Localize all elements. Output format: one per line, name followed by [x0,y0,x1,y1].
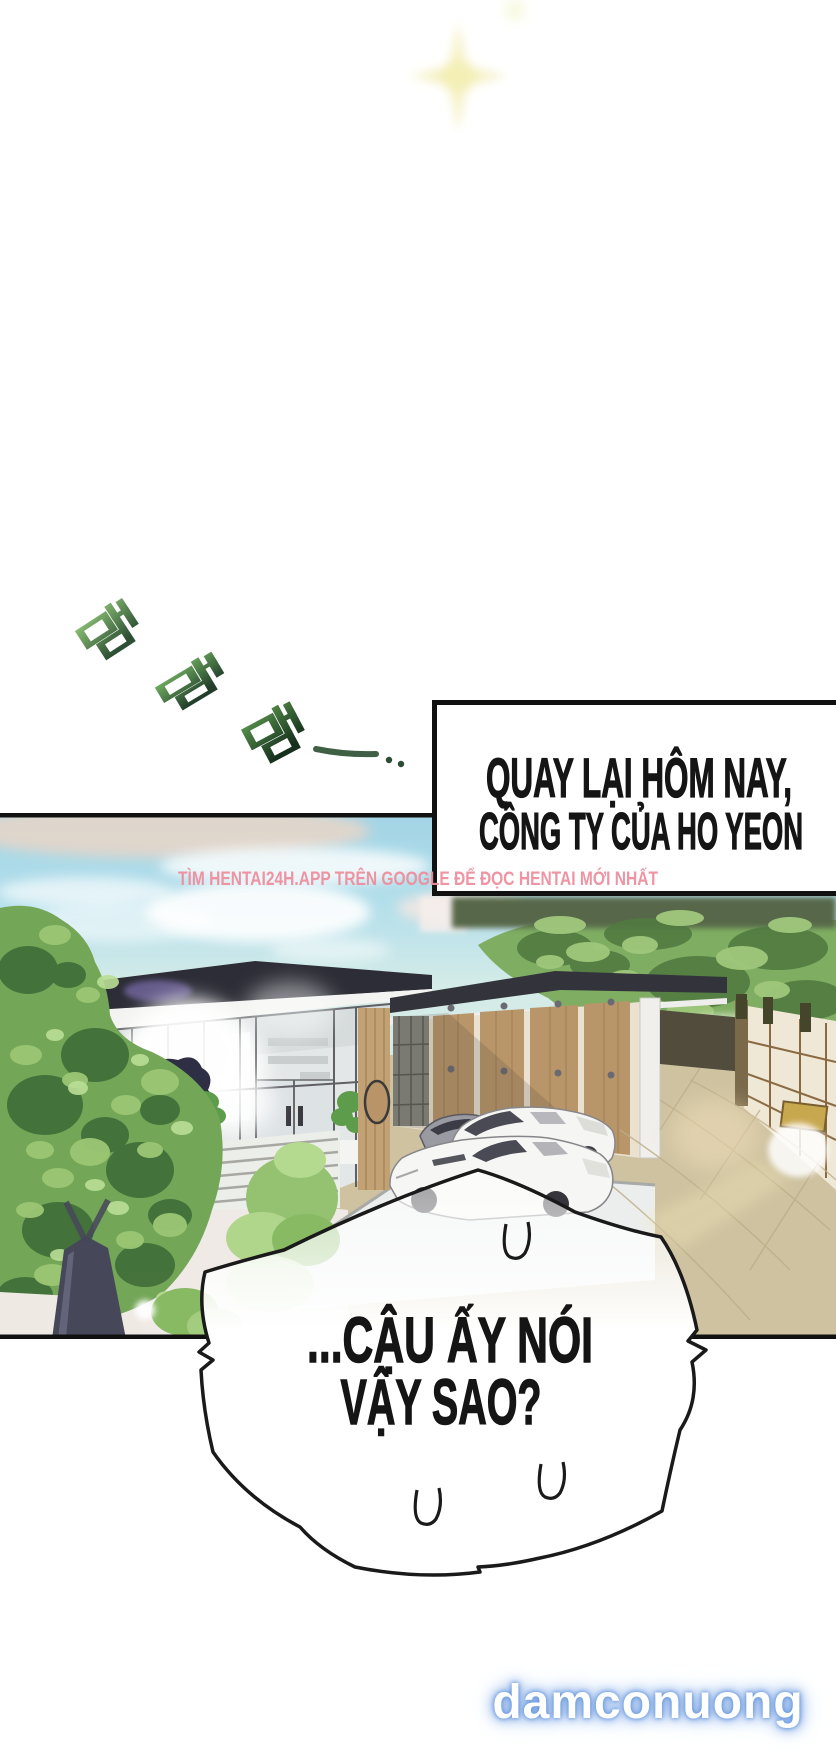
svg-text:QUAY LẠI HÔM NAY,: QUAY LẠI HÔM NAY, [486,746,792,809]
svg-text:VẬY SAO?: VẬY SAO? [341,1365,542,1438]
svg-text:TÌM HENTAI24H.APP TRÊN GOOGLE: TÌM HENTAI24H.APP TRÊN GOOGLE ĐỂ ĐỌC HEN… [178,866,658,890]
